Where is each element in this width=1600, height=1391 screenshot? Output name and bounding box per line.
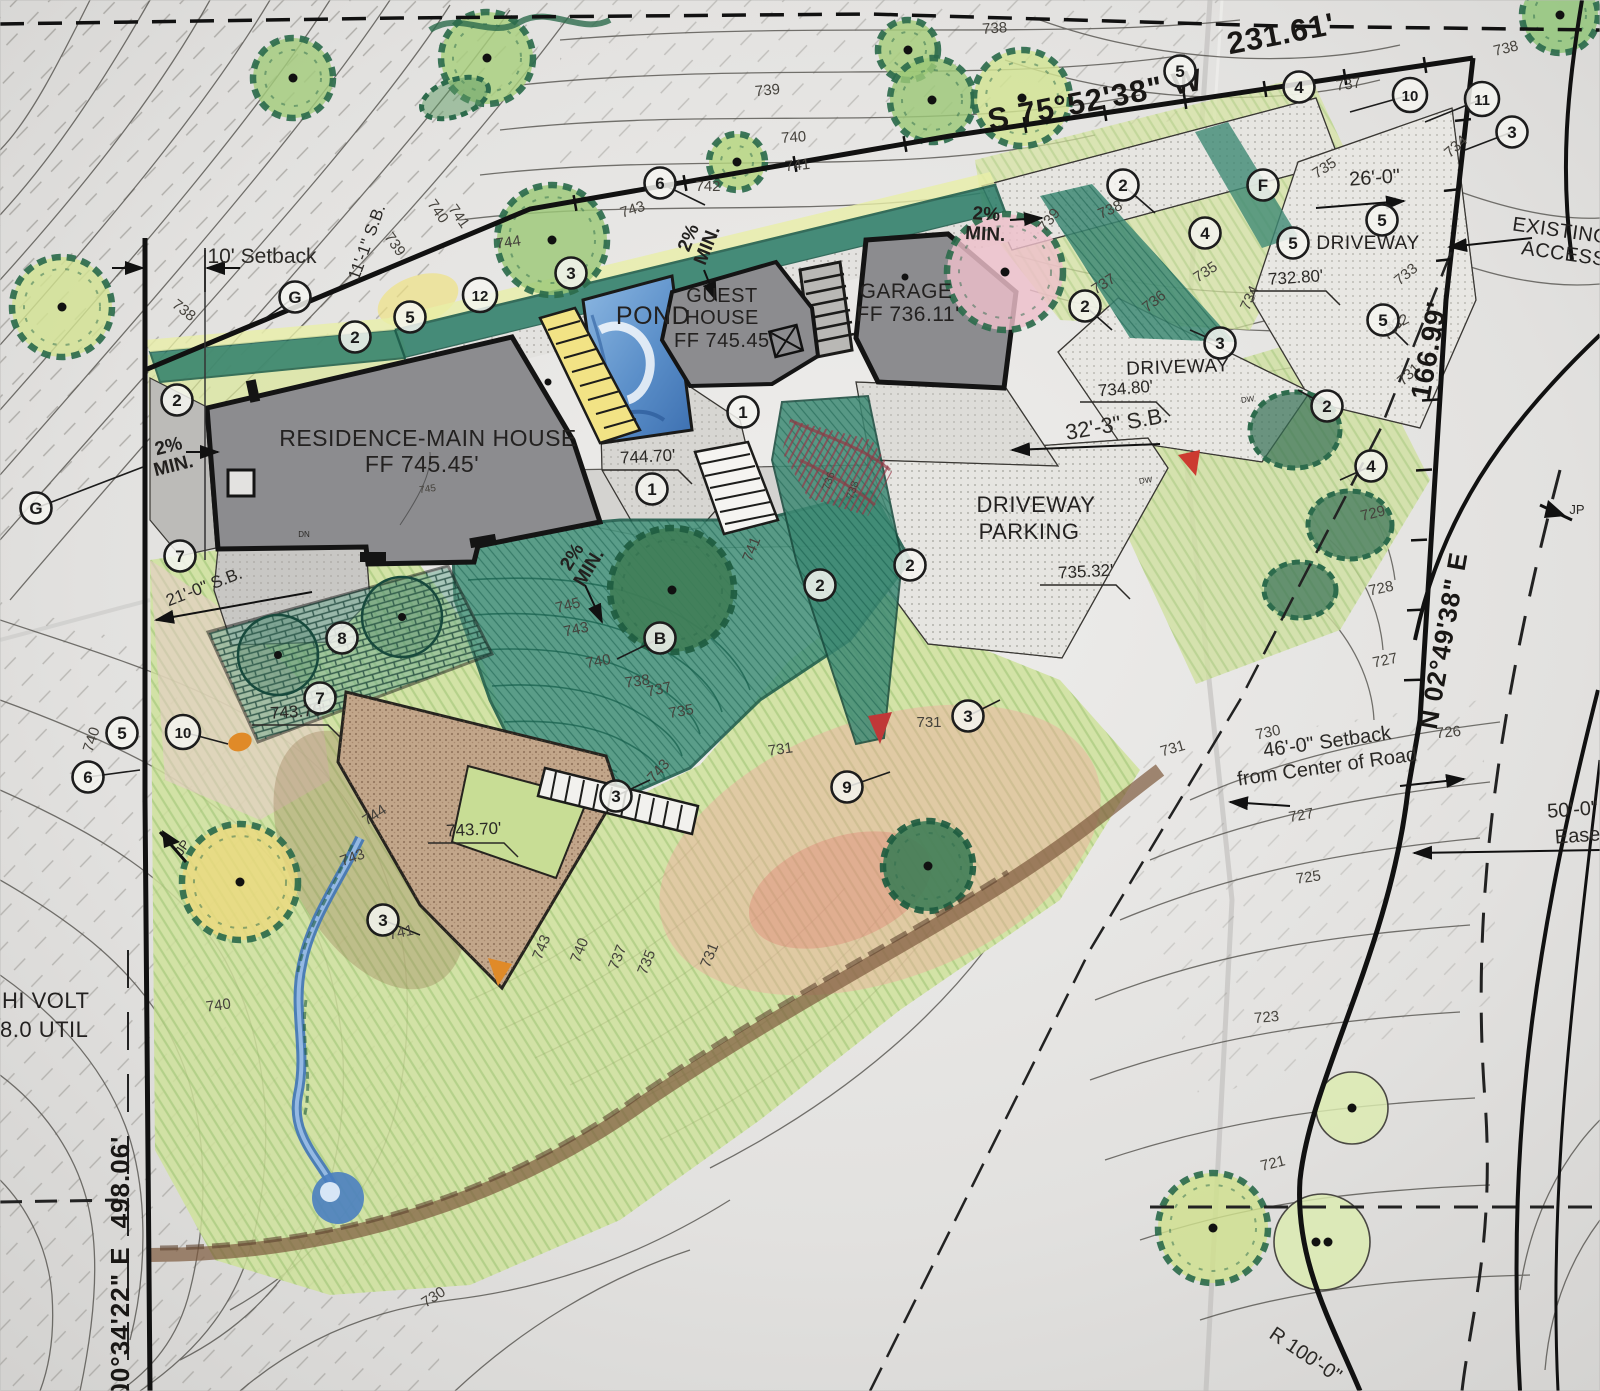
tree-icon <box>253 38 333 118</box>
contour-elevation-label: 739 <box>754 81 781 101</box>
survey-tick <box>1416 469 1432 470</box>
keynote-number: 3 <box>378 911 387 930</box>
misc-label: JP <box>1569 502 1584 517</box>
keynote-number: 10 <box>175 725 192 742</box>
keynote-number: 10 <box>1402 88 1419 105</box>
contour-elevation-label: 740 <box>205 995 232 1015</box>
keynote-2: 2 <box>162 385 193 416</box>
keynote-12: 12 <box>463 278 497 312</box>
building-label: GUEST <box>686 285 757 307</box>
spot-elevation-label: 744.70' <box>620 446 676 468</box>
contour-elevation-label: 738 <box>982 19 1008 38</box>
keynote-number: 6 <box>655 174 664 193</box>
keynote-number: 11 <box>1474 92 1490 109</box>
keynote-3: 3 <box>1497 117 1528 148</box>
keynote-number: 2 <box>815 576 824 595</box>
survey-tick <box>1407 610 1423 611</box>
keynote-number: 5 <box>1288 234 1297 253</box>
keynote-number: 12 <box>472 288 489 305</box>
keynote-number: 4 <box>1366 457 1376 476</box>
contour-elevation-label: 744 <box>495 232 522 252</box>
dimension-label: 50'-0" <box>1546 797 1598 823</box>
spot-elevation-label: 732.80' <box>1267 266 1323 289</box>
building-label: FF 745.45' <box>674 330 774 352</box>
keynote-5: 5 <box>1368 305 1399 336</box>
scanned-site-plan: Hand-colored architectural site plan wit… <box>0 0 1600 1391</box>
keynote-B: B <box>645 623 676 654</box>
site-feature-label: POND <box>616 302 690 330</box>
misc-label: DW <box>1240 394 1255 405</box>
tree-icon <box>883 821 973 911</box>
keynote-number: 5 <box>1378 311 1387 330</box>
keynote-number: 4 <box>1294 78 1304 97</box>
keynote-6: 6 <box>73 762 104 793</box>
keynote-3: 3 <box>1205 328 1236 359</box>
contour-elevation-label: 742 <box>695 178 720 195</box>
keynote-number: 2 <box>1080 297 1089 316</box>
site-feature-label: DRIVEWAY <box>1126 355 1230 380</box>
keynote-number: 7 <box>315 689 324 708</box>
keynote-11: 11 <box>1465 82 1499 116</box>
site-feature-label: DRIVEWAY <box>977 492 1096 517</box>
keynote-7: 7 <box>165 541 196 572</box>
keynote-3: 3 <box>368 905 399 936</box>
keynote-number: 7 <box>175 547 184 566</box>
keynote-4: 4 <box>1190 218 1221 249</box>
tree-icon <box>12 257 112 357</box>
keynote-number: F <box>1258 176 1268 195</box>
survey-tick <box>1411 540 1427 541</box>
misc-label: DW <box>1138 475 1153 486</box>
keynote-5: 5 <box>1278 228 1309 259</box>
keynote-F: F <box>1248 170 1279 201</box>
keynote-1: 1 <box>728 397 759 428</box>
keynote-5: 5 <box>107 718 138 749</box>
building-label: FF 745.45' <box>365 451 479 477</box>
keynote-3: 3 <box>601 781 632 812</box>
contour-elevation-label: 725 <box>1295 867 1322 887</box>
keynote-2: 2 <box>340 322 371 353</box>
keynote-number: 2 <box>350 328 359 347</box>
keynote-10: 10 <box>166 715 200 749</box>
keynote-8: 8 <box>327 623 358 654</box>
site-feature-label: HI VOLT <box>2 988 89 1013</box>
keynote-number: 6 <box>83 768 92 787</box>
keynote-number: 9 <box>842 778 851 797</box>
keynote-6: 6 <box>645 168 676 199</box>
building-label: GARAGE <box>860 280 953 303</box>
contour-elevation-label: 731 <box>916 714 941 731</box>
keynote-4: 4 <box>1284 72 1315 103</box>
site-feature-label: DRIVEWAY <box>1316 233 1419 254</box>
keynote-number: 2 <box>905 556 914 575</box>
boundary-bearing-label: 00°34'22" E <box>105 1246 135 1391</box>
keynote-number: 2 <box>1322 397 1331 416</box>
contour-elevation-label: 731 <box>767 739 794 759</box>
keynote-2: 2 <box>1108 170 1139 201</box>
keynote-number: 5 <box>405 308 414 327</box>
survey-tick <box>1455 119 1471 121</box>
boundary-bearing-label: 498.06' <box>105 1136 135 1229</box>
keynote-4: 4 <box>1356 451 1387 482</box>
survey-tick <box>1444 189 1460 191</box>
keynote-2: 2 <box>1312 391 1343 422</box>
keynote-number: 2 <box>1118 176 1127 195</box>
contour-elevation-label: 740 <box>781 128 807 147</box>
tree-icon <box>890 58 974 142</box>
keynote-number: 3 <box>963 707 972 726</box>
site-feature-label: 8.0 UTIL <box>0 1017 88 1042</box>
dimension-label: Ease <box>1554 823 1600 848</box>
tree-icon <box>1316 1072 1388 1144</box>
keynote-9: 9 <box>832 772 863 803</box>
keynote-number: 8 <box>337 629 346 648</box>
keynote-number: 4 <box>1200 224 1210 243</box>
site-plan-drawing: 7387397407417427437447387397407417387377… <box>0 0 1600 1391</box>
survey-tick <box>1404 680 1420 681</box>
keynote-number: 3 <box>1507 123 1516 142</box>
keynote-3: 3 <box>556 258 587 289</box>
keynote-2: 2 <box>805 570 836 601</box>
contour-elevation-label: 741 <box>784 156 811 176</box>
misc-label: DN <box>298 530 310 539</box>
keynote-5: 5 <box>395 302 426 333</box>
keynote-5: 5 <box>1367 205 1398 236</box>
keynote-10: 10 <box>1393 78 1427 112</box>
spot-elevation-label: 743.70' <box>446 819 502 841</box>
contour-elevation-label: 737 <box>1335 74 1362 94</box>
survey-tick <box>1436 259 1452 261</box>
keynote-3: 3 <box>953 701 984 732</box>
keynote-number: 2 <box>172 391 181 410</box>
keynote-G: G <box>21 493 52 524</box>
tree-icon <box>182 824 298 940</box>
keynote-number: 3 <box>566 264 575 283</box>
keynote-number: 5 <box>1377 211 1386 230</box>
keynote-number: G <box>29 499 42 518</box>
keynote-7: 7 <box>305 683 336 714</box>
keynote-number: 5 <box>117 724 126 743</box>
keynote-number: 5 <box>1175 62 1184 81</box>
building-label: FF 736.11' <box>856 303 959 326</box>
dimension-label: 10' Setback <box>207 245 317 268</box>
building-label: HOUSE <box>685 307 759 329</box>
keynote-number: 3 <box>1215 334 1224 353</box>
keynote-number: B <box>654 629 666 648</box>
building-label: RESIDENCE-MAIN HOUSE <box>279 425 577 451</box>
dimension-label: 26'-0" <box>1348 165 1400 191</box>
site-feature-label: PARKING <box>979 519 1080 544</box>
keynote-5: 5 <box>1165 56 1196 87</box>
keynote-number: 3 <box>611 787 620 806</box>
spot-elevation-label: 735.32' <box>1058 561 1114 583</box>
keynote-G: G <box>280 282 311 313</box>
keynote-number: 1 <box>647 480 656 499</box>
keynote-number: 1 <box>738 403 747 422</box>
keynote-number: G <box>288 288 301 307</box>
tree-icon <box>1158 1173 1268 1283</box>
keynote-2: 2 <box>1070 291 1101 322</box>
contour-elevation-label: 723 <box>1253 1008 1279 1027</box>
keynote-1: 1 <box>637 474 668 505</box>
keynote-2: 2 <box>895 550 926 581</box>
